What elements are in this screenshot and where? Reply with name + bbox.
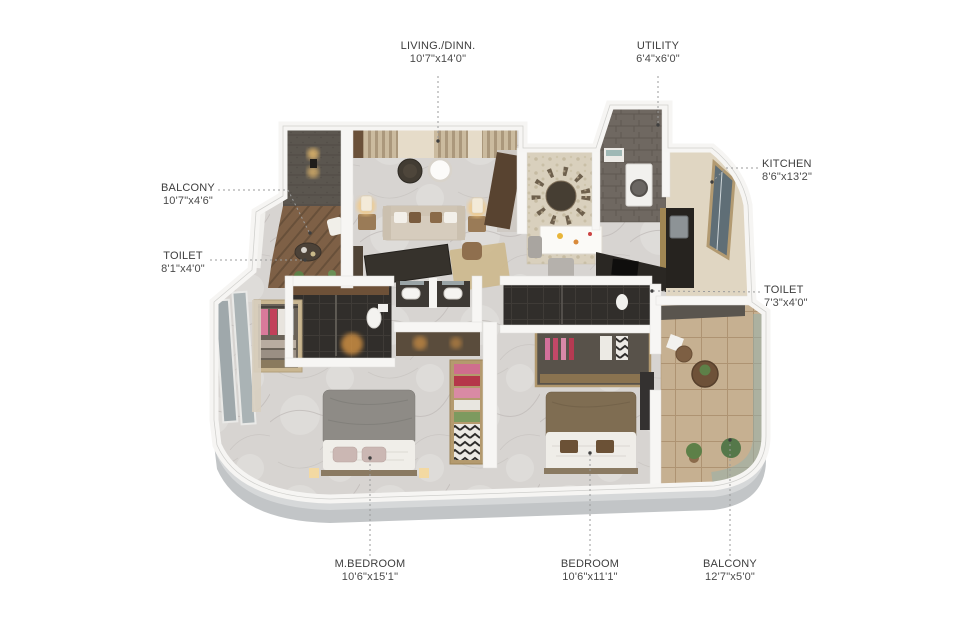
room-dims: 8'6"x13'2" xyxy=(762,171,852,184)
table-lamp xyxy=(472,198,483,213)
toilet-left-room xyxy=(291,281,391,361)
dining-area xyxy=(527,148,602,282)
table-lamp xyxy=(361,196,372,211)
room-name: BALCONY xyxy=(133,182,243,195)
room-dims: 10'7"x14'0" xyxy=(378,53,498,66)
dressing-cabinets xyxy=(396,330,480,356)
wash-basin xyxy=(444,288,462,299)
wash-basin xyxy=(402,288,420,299)
kitchen-window xyxy=(708,162,734,258)
armchair xyxy=(462,242,482,260)
room-dims: 12'7"x5'0" xyxy=(670,571,790,584)
table-plant xyxy=(700,365,711,376)
room-dims: 6'4"x6'0" xyxy=(608,53,708,66)
wc-seat xyxy=(616,294,628,310)
room-label-balcony-left: BALCONY 10'7"x4'6" xyxy=(133,182,243,208)
dining-stool xyxy=(528,236,542,258)
room-name: M.BEDROOM xyxy=(310,558,430,571)
room-name: TOILET xyxy=(128,250,238,263)
bed-2 xyxy=(544,392,638,474)
potted-plant xyxy=(686,443,702,459)
cooktop-hob xyxy=(611,259,639,278)
room-label-utility: UTILITY 6'4"x6'0" xyxy=(608,40,708,66)
balcony-chair xyxy=(676,346,692,362)
wash-basin-niches xyxy=(396,278,470,308)
room-name: KITCHEN xyxy=(762,158,852,171)
side-table xyxy=(358,214,376,230)
room-label-toilet-right: TOILET 7'3"x4'0" xyxy=(764,284,854,310)
balcony-right xyxy=(661,302,766,488)
room-label-master-bedroom: M.BEDROOM 10'6"x15'1" xyxy=(310,558,430,584)
room-name: BALCONY xyxy=(670,558,790,571)
room-dims: 7'3"x4'0" xyxy=(764,297,854,310)
wardrobe xyxy=(536,330,650,386)
room-name: BEDROOM xyxy=(530,558,650,571)
bedside-lamp xyxy=(309,468,319,478)
kitchen-sink xyxy=(670,216,688,238)
curtain xyxy=(252,300,261,412)
room-label-toilet-left: TOILET 8'1"x4'0" xyxy=(128,250,238,276)
room-name: UTILITY xyxy=(608,40,708,53)
floorplan-render xyxy=(0,0,957,625)
room-dims: 10'6"x15'1" xyxy=(310,571,430,584)
room-label-balcony-right: BALCONY 12'7"x5'0" xyxy=(670,558,790,584)
sofa xyxy=(383,206,465,240)
room-dims: 10'6"x11'1" xyxy=(530,571,650,584)
room-name: LIVING./DINN. xyxy=(378,40,498,53)
bedside-lamp xyxy=(419,468,429,478)
round-wall-light xyxy=(429,159,451,181)
side-table xyxy=(468,216,486,232)
room-dims: 8'1"x4'0" xyxy=(128,263,238,276)
room-dims: 10'7"x4'6" xyxy=(133,195,243,208)
room-label-bedroom: BEDROOM 10'6"x11'1" xyxy=(530,558,650,584)
living-slat-accent-wall xyxy=(353,126,517,158)
display-shelf xyxy=(450,360,484,464)
room-name: TOILET xyxy=(764,284,854,297)
toilet-right-room xyxy=(504,281,652,327)
floorplan-canvas: LIVING./DINN. 10'7"x14'0" UTILITY 6'4"x6… xyxy=(0,0,957,625)
room-label-living-dining: LIVING./DINN. 10'7"x14'0" xyxy=(378,40,498,66)
master-bed xyxy=(321,390,417,476)
room-label-kitchen: KITCHEN 8'6"x13'2" xyxy=(762,158,852,184)
balcony-coffee-table xyxy=(295,243,321,261)
wall-sconce-light xyxy=(310,159,317,168)
